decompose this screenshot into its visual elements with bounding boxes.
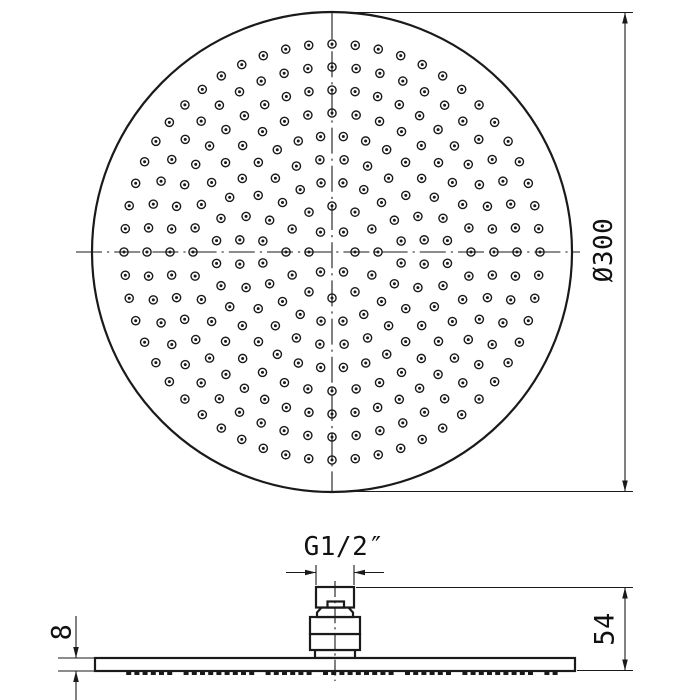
nozzle-tooth [216, 671, 221, 675]
nozzle-tooth [323, 671, 328, 675]
nozzle-tooth [266, 671, 271, 675]
nozzle-tooth [192, 671, 197, 675]
nozzle-tooth [479, 671, 484, 675]
nozzle-tooth [503, 671, 508, 675]
nozzle-tooth [512, 671, 517, 675]
nozzle-tooth [446, 671, 451, 675]
nozzle-tooth [430, 671, 435, 675]
thread-size-label: G1/2″ [304, 534, 385, 560]
nozzle-tooth [372, 671, 377, 675]
nozzle-tooth [520, 671, 525, 675]
drawing-page: Ø300 G1/2″ 54 8 [0, 0, 700, 700]
nozzle-tooth [184, 671, 189, 675]
nozzle-tooth [274, 671, 279, 675]
nozzle-tooth [233, 671, 238, 675]
nozzle-tooth [134, 671, 139, 675]
nozzle-tooth [151, 671, 156, 675]
nozzle-tooth [200, 671, 205, 675]
nozzle-tooth [167, 671, 172, 675]
nozzle-tooth [553, 671, 558, 675]
nozzle-tooth [528, 671, 533, 675]
diameter-dimension-label: Ø300 [591, 218, 617, 283]
nozzle-tooth [126, 671, 131, 675]
nozzle-tooth [298, 671, 303, 675]
nozzle-tooth [471, 671, 476, 675]
height-dimension-label: 54 [592, 612, 619, 646]
nozzle-tooth [249, 671, 254, 675]
nozzle-tooth [364, 671, 369, 675]
nozzle-tooth [339, 671, 344, 675]
nozzle-tooth [290, 671, 295, 675]
thread-notch [328, 602, 345, 608]
nozzle-tooth [389, 671, 394, 675]
nozzle-tooth [159, 671, 164, 675]
thickness-dimension-label: 8 [49, 624, 76, 641]
nozzle-tooth [225, 671, 230, 675]
nozzle-tooth [438, 671, 443, 675]
nozzle-tooth [405, 671, 410, 675]
nozzle-tooth [380, 671, 385, 675]
nozzle-tooth [544, 671, 549, 675]
nozzle-tooth [143, 671, 148, 675]
nozzle-tooth [307, 671, 312, 675]
shower-head-drawing [0, 0, 700, 700]
nozzle-tooth [495, 671, 500, 675]
nozzle-tooth [282, 671, 287, 675]
nozzle-tooth [241, 671, 246, 675]
nozzle-tooth [208, 671, 213, 675]
nozzle-tooth [348, 671, 353, 675]
nozzle-tooth [413, 671, 418, 675]
nozzle-tooth [421, 671, 426, 675]
nozzle-tooth [462, 671, 467, 675]
nozzle-tooth [487, 671, 492, 675]
nozzle-tooth [356, 671, 361, 675]
